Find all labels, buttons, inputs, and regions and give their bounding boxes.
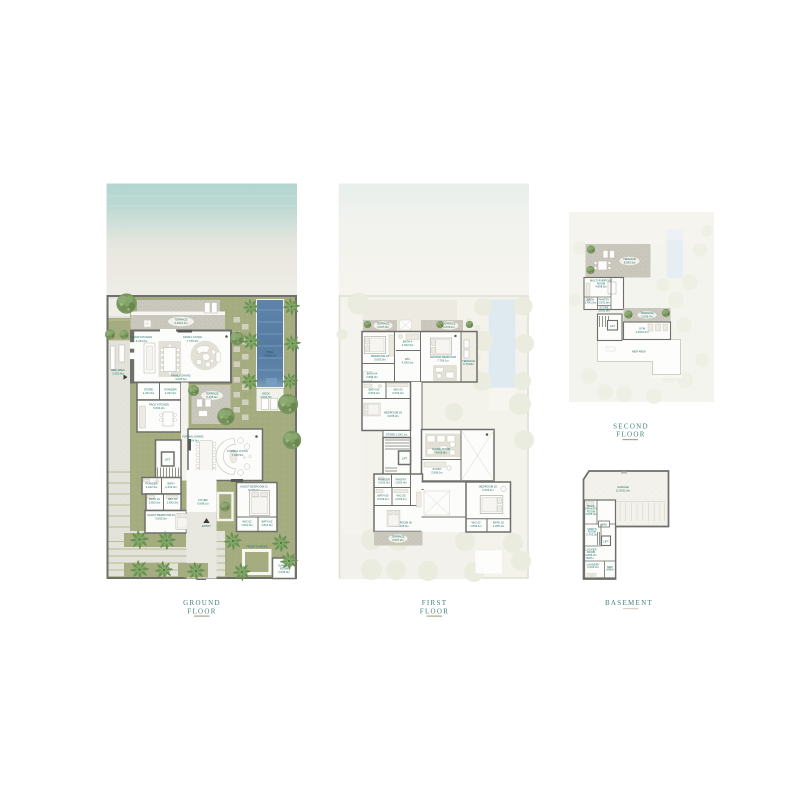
svg-text:W/M: W/M <box>601 523 607 527</box>
svg-text:BATH 012.8X2.6m: BATH 012.8X2.6m <box>149 497 161 504</box>
svg-text:POWDER2.4X2.3m: POWDER2.4X2.3m <box>145 482 158 489</box>
svg-text:GARAGE11.9X11.0m: GARAGE11.9X11.0m <box>616 485 631 493</box>
svg-text:LIFT: LIFT <box>603 540 609 544</box>
svg-text:BATH 022.0X5.1m: BATH 022.0X5.1m <box>493 521 505 528</box>
svg-text:SECOND: SECOND <box>613 423 649 431</box>
svg-text:STORE 1.0X2.1m: STORE 1.0X2.1m <box>386 432 408 436</box>
svg-text:POWDER2.4X1.9m: POWDER2.4X1.9m <box>164 388 177 395</box>
svg-text:FLOOR: FLOOR <box>420 608 449 616</box>
svg-text:MEP AREA: MEP AREA <box>632 350 646 354</box>
svg-text:LIFT: LIFT <box>165 458 171 462</box>
svg-text:TERRACE2.0X7.2m: TERRACE2.0X7.2m <box>392 535 405 542</box>
svg-text:FLOOR: FLOOR <box>616 431 645 439</box>
svg-text:TERRACE2.0X6.7m: TERRACE2.0X6.7m <box>641 311 654 318</box>
svg-text:BASEMENT: BASEMENT <box>605 599 653 607</box>
svg-text:PANTRY1.0X2.4m: PANTRY1.0X2.4m <box>395 478 407 485</box>
svg-text:FIRST: FIRST <box>422 599 448 607</box>
svg-text:LIFT: LIFT <box>402 457 408 461</box>
svg-text:FLOOR: FLOOR <box>187 608 216 616</box>
svg-text:BATH: BATH <box>587 556 594 560</box>
svg-text:TERRACE2.0X9.1m: TERRACE2.0X9.1m <box>443 322 456 329</box>
svg-text:BATH 021.8X1.6m: BATH 021.8X1.6m <box>261 520 273 527</box>
svg-text:TERRACE8.9X3.3m: TERRACE8.9X3.3m <box>623 257 636 264</box>
svg-text:ENTRY: ENTRY <box>202 524 211 528</box>
svg-text:TERRACE9.0X12.4m: TERRACE9.0X12.4m <box>175 318 189 326</box>
svg-text:MEPAREA: MEPAREA <box>606 565 614 572</box>
svg-text:TERRACE5.1X5.4m: TERRACE5.1X5.4m <box>206 392 219 399</box>
svg-text:PANTRY1.6X1.9m: PANTRY1.6X1.9m <box>598 298 610 305</box>
svg-text:FRONT GARDEN: FRONT GARDEN <box>246 545 268 549</box>
svg-text:BBQ AREA3.2X3.6m: BBQ AREA3.2X3.6m <box>111 368 125 375</box>
svg-text:TERRACE0.7X13m: TERRACE0.7X13m <box>462 359 475 366</box>
svg-text:BATH 032.8X3.4m: BATH 032.8X3.4m <box>368 388 380 395</box>
svg-text:BATH 052.0X3.1m: BATH 052.0X3.1m <box>377 494 389 501</box>
svg-text:LIFT: LIFT <box>610 324 616 328</box>
svg-text:TERRACE2.0X7.0m: TERRACE2.0X7.0m <box>377 322 390 329</box>
svg-text:BATH 042.8X3.0m: BATH 042.8X3.0m <box>366 372 378 379</box>
svg-text:POWDER2.0X2.4m: POWDER2.0X2.4m <box>378 478 391 485</box>
svg-text:GROUND: GROUND <box>183 599 221 607</box>
svg-text:LAUNDRY4.2X3.4m: LAUNDRY4.2X3.4m <box>587 563 600 570</box>
